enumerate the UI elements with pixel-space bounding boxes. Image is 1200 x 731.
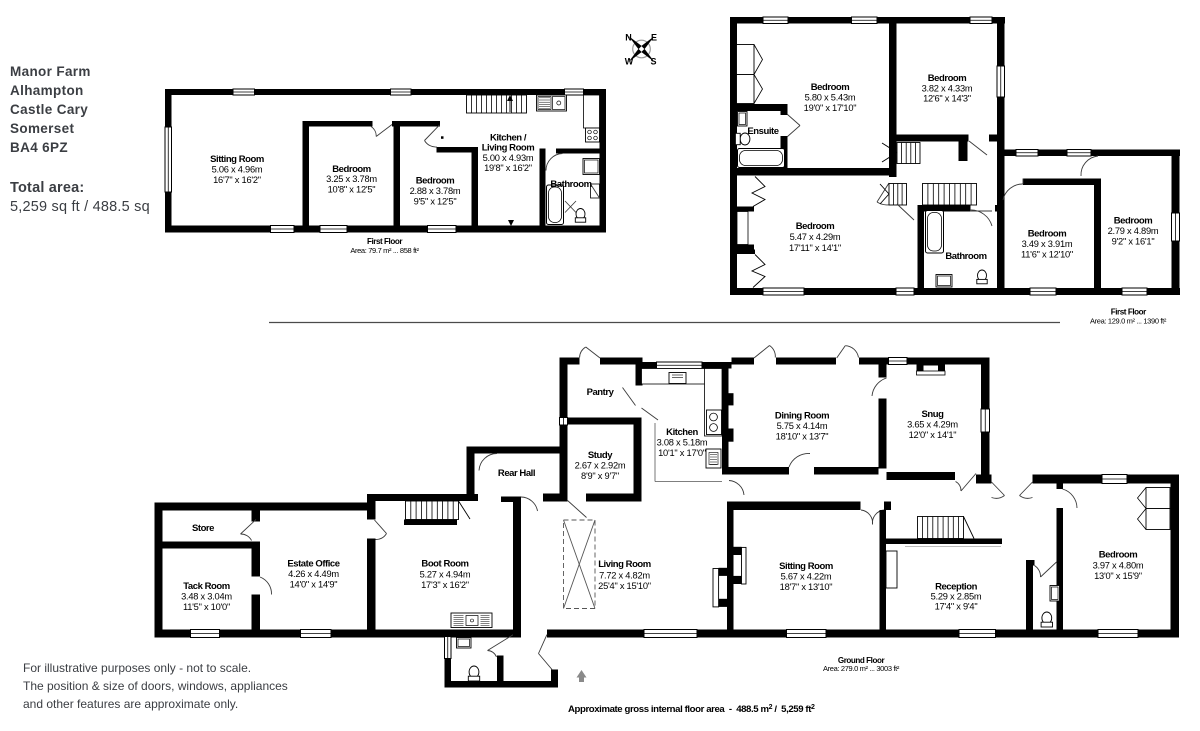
svg-text:Bedroom: Bedroom [416,176,455,187]
svg-text:Store: Store [192,523,214,534]
svg-text:Area: 279.0 m² ... 3003 ft²: Area: 279.0 m² ... 3003 ft² [823,664,900,673]
svg-text:12'0" x 14'1": 12'0" x 14'1" [909,430,957,440]
svg-text:Bedroom: Bedroom [1099,550,1138,561]
svg-text:Estate Office: Estate Office [287,559,339,570]
svg-text:3.08 x 5.18m: 3.08 x 5.18m [657,438,708,448]
svg-text:11'5" x 10'0": 11'5" x 10'0" [183,602,230,612]
svg-text:10'8" x 12'5": 10'8" x 12'5" [328,184,376,194]
svg-text:3.25 x 3.78m: 3.25 x 3.78m [326,174,377,184]
svg-text:7.72 x 4.82m: 7.72 x 4.82m [599,571,650,581]
svg-text:5.80 x 5.43m: 5.80 x 5.43m [805,93,856,103]
svg-text:3.97 x 4.80m: 3.97 x 4.80m [1093,561,1144,571]
svg-text:16'7" x 16'2": 16'7" x 16'2" [213,175,261,185]
svg-text:9'2" x 16'1": 9'2" x 16'1" [1112,237,1155,247]
svg-text:Rear Hall: Rear Hall [498,468,535,479]
svg-text:19'0" x 17'10": 19'0" x 17'10" [804,103,857,113]
svg-text:Pantry: Pantry [587,387,615,398]
svg-text:First Floor: First Floor [367,237,403,246]
svg-text:5.00 x 4.93m: 5.00 x 4.93m [483,153,534,163]
svg-text:5.06 x 4.96m: 5.06 x 4.96m [212,165,263,175]
svg-text:3.65 x 4.29m: 3.65 x 4.29m [907,420,958,430]
svg-text:Sitting Room: Sitting Room [210,154,264,165]
svg-text:Ensuite: Ensuite [747,126,778,137]
svg-text:14'0" x 14'9": 14'0" x 14'9" [290,580,338,590]
svg-text:11'6" x 12'10": 11'6" x 12'10" [1021,250,1073,260]
svg-text:2.67 x 2.92m: 2.67 x 2.92m [575,461,626,471]
svg-text:Sitting Room: Sitting Room [779,561,833,572]
svg-text:5.47 x 4.29m: 5.47 x 4.29m [790,232,841,242]
svg-text:4.26 x 4.49m: 4.26 x 4.49m [288,569,339,579]
svg-text:Living Room: Living Room [598,559,651,570]
svg-text:E: E [651,33,657,43]
svg-text:Bedroom: Bedroom [1114,216,1153,227]
svg-text:19'8" x 16'2": 19'8" x 16'2" [484,163,532,173]
svg-text:S: S [650,57,656,67]
svg-text:3.49 x 3.91m: 3.49 x 3.91m [1022,239,1073,249]
svg-text:First Floor: First Floor [1111,308,1147,317]
svg-text:Dining Room: Dining Room [775,411,829,422]
svg-text:18'7" x 13'10": 18'7" x 13'10" [780,582,833,592]
svg-text:5.29 x 2.85m: 5.29 x 2.85m [931,591,982,601]
svg-text:Kitchen: Kitchen [666,427,698,438]
svg-text:2.88 x 3.78m: 2.88 x 3.78m [410,186,461,196]
svg-text:Study: Study [588,450,613,461]
svg-text:Area: 129.0 m² ... 1390 ft²: Area: 129.0 m² ... 1390 ft² [1090,316,1167,325]
svg-text:Boot Room: Boot Room [421,559,468,570]
svg-text:5.67 x 4.22m: 5.67 x 4.22m [781,571,832,581]
svg-text:Bedroom: Bedroom [796,221,835,232]
svg-text:2.79 x 4.89m: 2.79 x 4.89m [1108,226,1159,236]
svg-text:N: N [625,33,632,43]
svg-text:12'6" x 14'3": 12'6" x 14'3" [923,94,971,104]
svg-text:Living Room: Living Room [482,143,535,154]
svg-text:Snug: Snug [922,409,945,420]
svg-text:Bedroom: Bedroom [1028,229,1067,240]
svg-text:13'0" x 15'9": 13'0" x 15'9" [1094,571,1142,581]
svg-text:Bathroom: Bathroom [550,179,591,190]
svg-text:10'1" x 17'0": 10'1" x 17'0" [658,448,706,458]
svg-text:9'5" x 12'5": 9'5" x 12'5" [414,197,457,207]
svg-text:3.82 x 4.33m: 3.82 x 4.33m [922,83,973,93]
svg-text:25'4" x 15'10": 25'4" x 15'10" [598,581,651,591]
svg-text:17'4" x 9'4": 17'4" x 9'4" [935,601,978,611]
svg-text:Bedroom: Bedroom [811,82,850,93]
svg-text:17'11" x 14'1": 17'11" x 14'1" [789,243,841,253]
svg-text:5.75 x 4.14m: 5.75 x 4.14m [777,421,828,431]
svg-text:Area: 79.7 m² ... 858 ft²: Area: 79.7 m² ... 858 ft² [350,246,419,255]
svg-text:Approximate gross internal flo: Approximate gross internal floor area - … [568,704,815,715]
svg-text:8'9" x 9'7": 8'9" x 9'7" [581,471,619,481]
svg-text:Tack Room: Tack Room [183,581,229,592]
svg-text:5.27 x 4.94m: 5.27 x 4.94m [420,570,471,580]
svg-text:18'10" x 13'7": 18'10" x 13'7" [776,432,829,442]
svg-text:3.48 x 3.04m: 3.48 x 3.04m [181,592,232,602]
svg-text:Bathroom: Bathroom [945,251,986,262]
svg-text:17'3" x 16'2": 17'3" x 16'2" [421,580,469,590]
svg-text:W: W [625,57,634,67]
